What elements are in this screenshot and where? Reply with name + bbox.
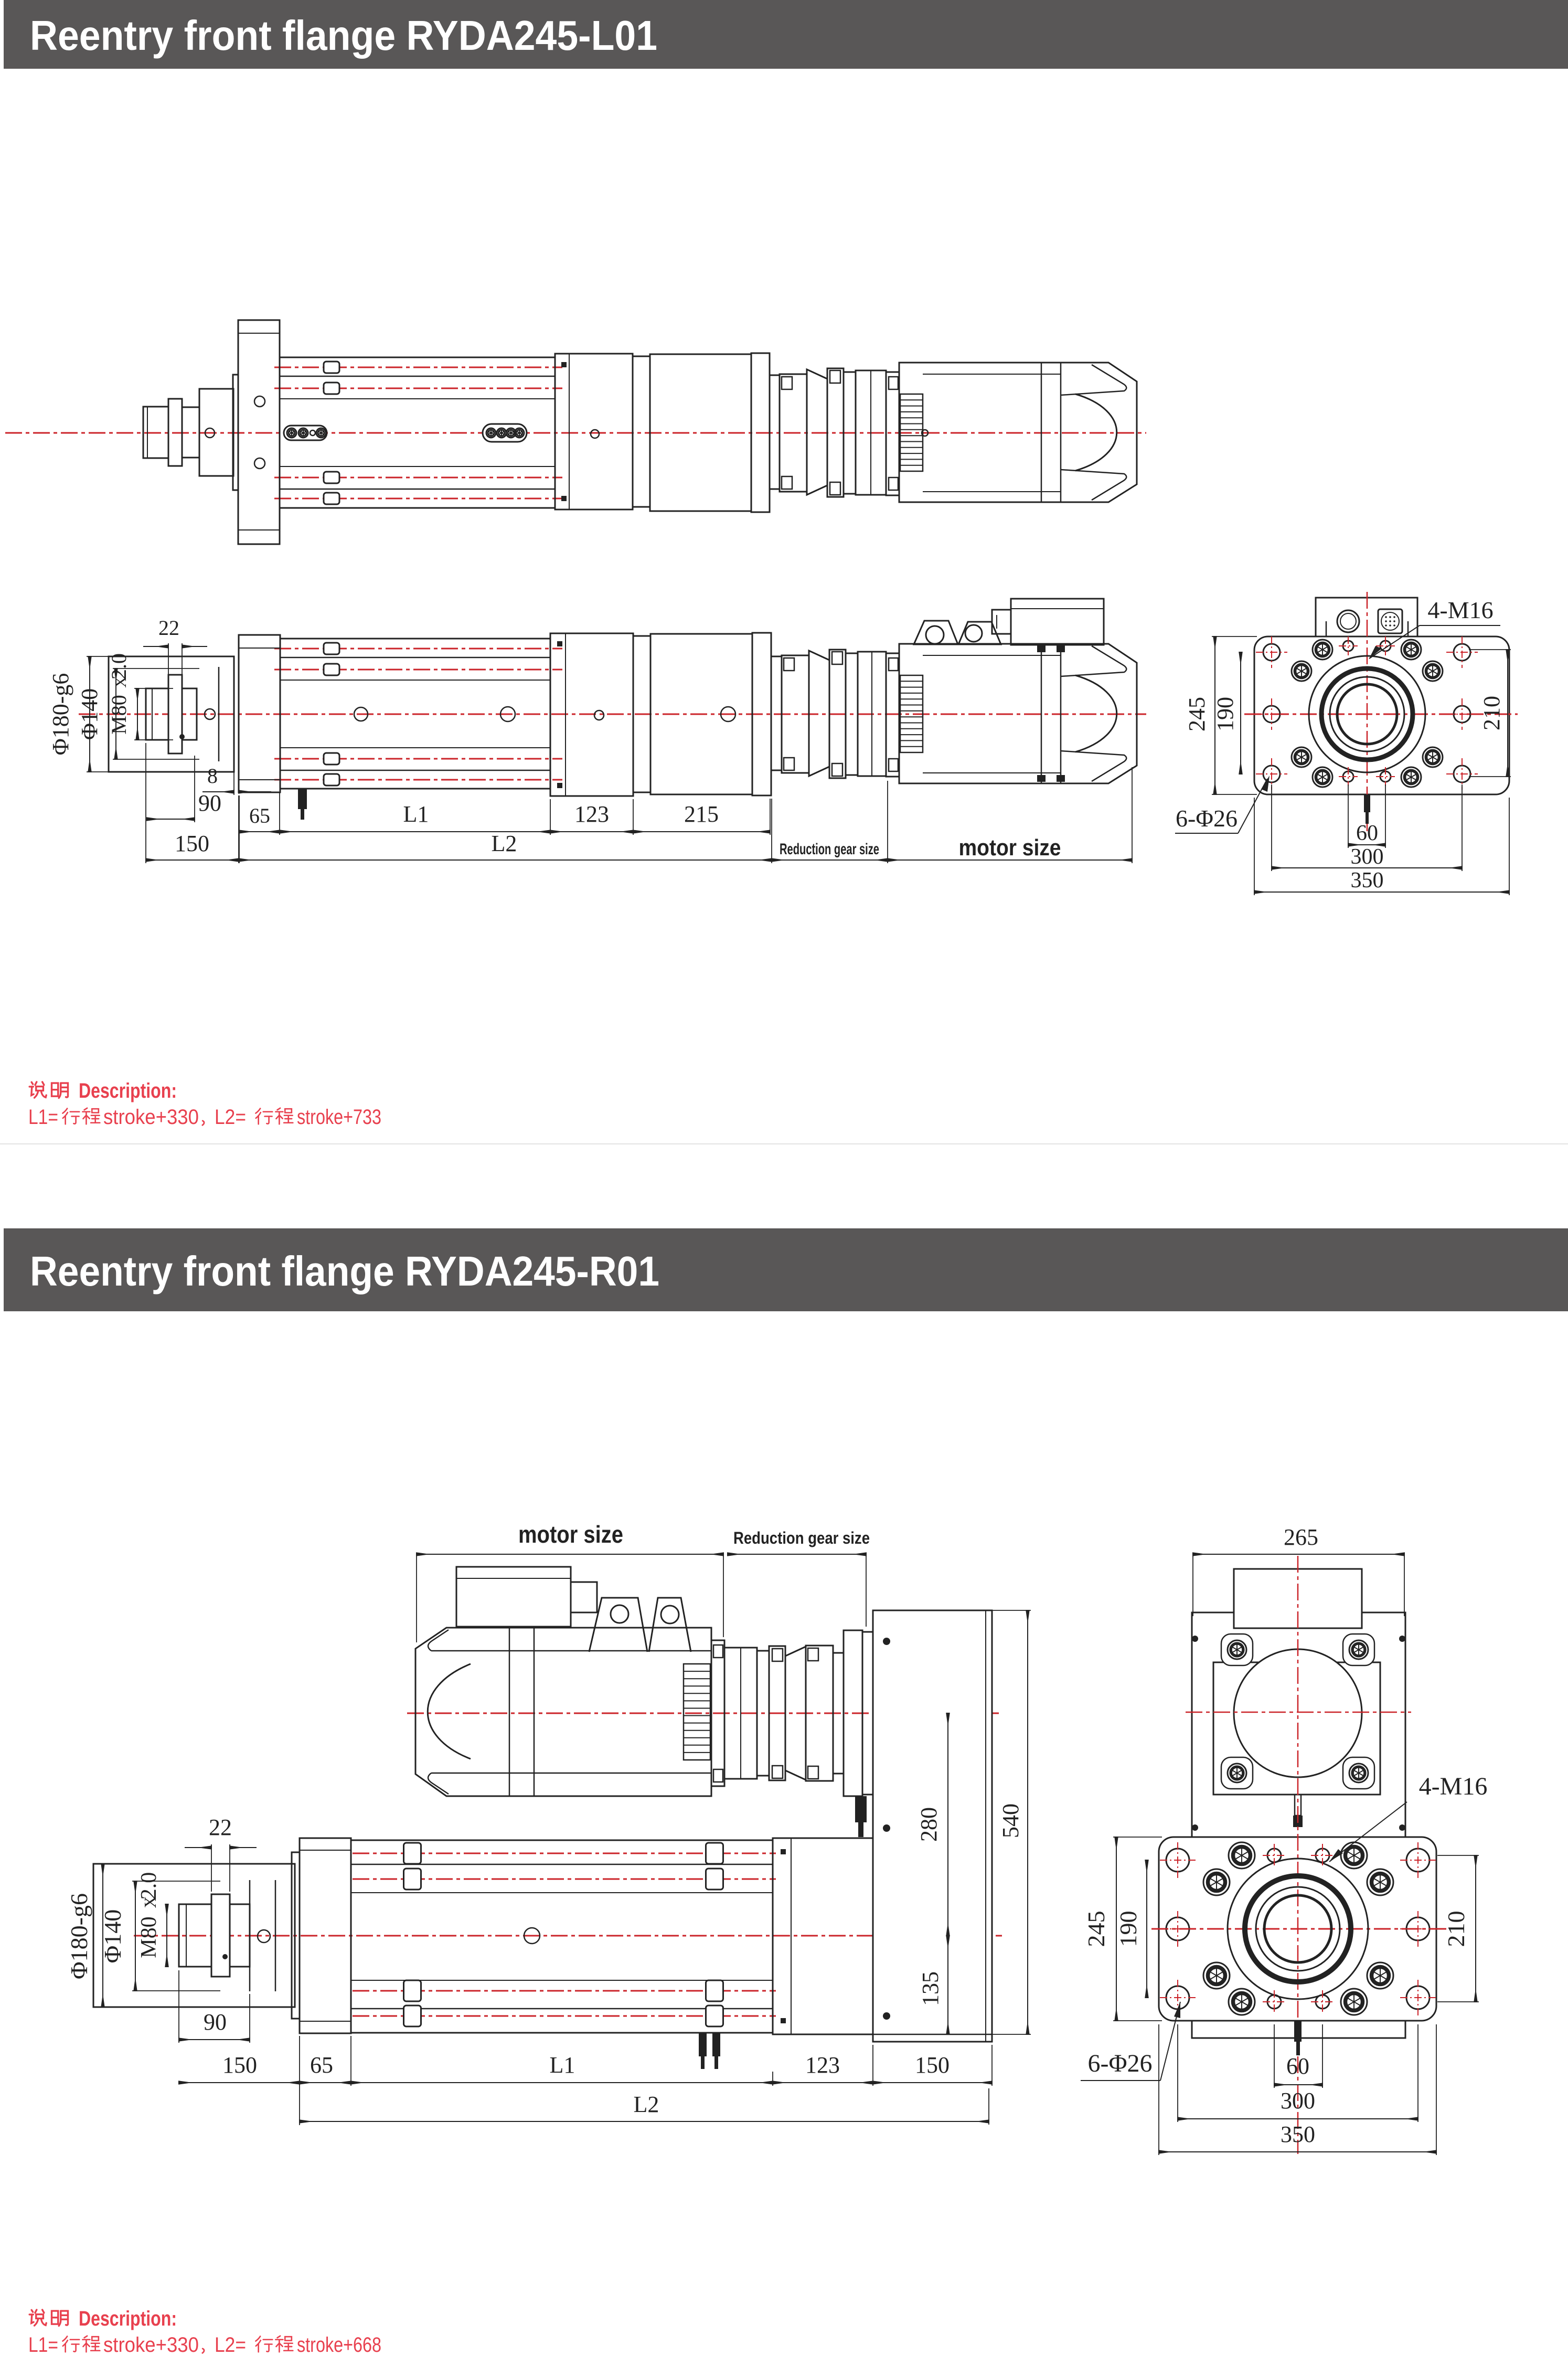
svg-text:210: 210: [1479, 696, 1505, 730]
svg-text:65: 65: [310, 2052, 333, 2078]
svg-text:90: 90: [204, 2009, 227, 2035]
svg-text:265: 265: [1284, 1524, 1318, 1550]
svg-text:motor size: motor size: [959, 835, 1061, 861]
svg-text:Φ140: Φ140: [99, 1909, 126, 1964]
svg-text:60: 60: [1286, 2053, 1309, 2079]
svg-text:245: 245: [1184, 697, 1210, 731]
svg-text:300: 300: [1281, 2088, 1315, 2114]
svg-text:123: 123: [805, 2052, 840, 2078]
svg-text:L2=: L2=: [215, 2333, 246, 2356]
svg-text:Description:: Description:: [79, 1079, 177, 1102]
svg-text:L1: L1: [403, 801, 429, 827]
svg-text:M80: M80: [107, 695, 131, 735]
svg-text:L2: L2: [492, 831, 517, 856]
svg-text:4-M16: 4-M16: [1427, 597, 1493, 623]
svg-text:Φ180-g6: Φ180-g6: [66, 1893, 92, 1979]
svg-text:60: 60: [1356, 821, 1378, 845]
svg-text:90: 90: [198, 790, 221, 816]
svg-text:motor size: motor size: [518, 1521, 623, 1548]
svg-text:stroke+668: stroke+668: [297, 2333, 381, 2356]
svg-text:Reentry front flange RYDA245-R: Reentry front flange RYDA245-R01: [30, 1248, 659, 1294]
svg-text:Reduction gear size: Reduction gear size: [733, 1529, 870, 1547]
svg-text:L1=: L1=: [28, 1106, 58, 1129]
svg-text:stroke+733: stroke+733: [297, 1106, 381, 1129]
svg-text:Φ140: Φ140: [77, 688, 102, 740]
svg-text:210: 210: [1443, 1911, 1469, 1947]
svg-text:150: 150: [222, 2052, 257, 2078]
svg-text:190: 190: [1212, 697, 1238, 731]
svg-text:190: 190: [1115, 1911, 1142, 1947]
svg-text:stroke+330: stroke+330: [103, 2333, 199, 2356]
svg-text:8: 8: [207, 764, 218, 788]
svg-text:350: 350: [1281, 2121, 1315, 2147]
svg-text:M80: M80: [137, 1916, 161, 1958]
svg-text:350: 350: [1351, 868, 1384, 893]
svg-text:L2=: L2=: [215, 1106, 246, 1129]
svg-text:L1=: L1=: [28, 2333, 58, 2356]
svg-text:150: 150: [915, 2052, 950, 2078]
svg-text:stroke+330: stroke+330: [103, 1106, 199, 1129]
svg-text:150: 150: [175, 831, 209, 856]
svg-text:215: 215: [684, 801, 719, 827]
svg-text:540: 540: [998, 1803, 1023, 1838]
svg-text:L1: L1: [550, 2052, 575, 2078]
svg-text:6-Φ26: 6-Φ26: [1176, 805, 1238, 832]
svg-text:Φ180-g6: Φ180-g6: [48, 673, 73, 756]
svg-text:2.0: 2.0: [137, 1872, 161, 1900]
svg-text:22: 22: [158, 616, 179, 640]
svg-text:123: 123: [574, 801, 609, 827]
svg-text:Description:: Description:: [79, 2307, 177, 2330]
svg-text:65: 65: [249, 804, 270, 827]
svg-text:2.0: 2.0: [107, 653, 131, 680]
svg-text:245: 245: [1083, 1911, 1110, 1947]
svg-text:22: 22: [209, 1814, 232, 1840]
svg-text:L2: L2: [634, 2092, 659, 2117]
svg-text:6-Φ26: 6-Φ26: [1087, 2050, 1152, 2077]
svg-text:135: 135: [918, 1971, 943, 2006]
svg-text:Reduction gear size: Reduction gear size: [780, 841, 879, 858]
svg-text:4-M16: 4-M16: [1419, 1773, 1488, 1800]
svg-text:300: 300: [1351, 845, 1384, 869]
svg-text:280: 280: [916, 1807, 942, 1842]
svg-text:Reentry front flange RYDA245-L: Reentry front flange RYDA245-L01: [30, 12, 657, 59]
